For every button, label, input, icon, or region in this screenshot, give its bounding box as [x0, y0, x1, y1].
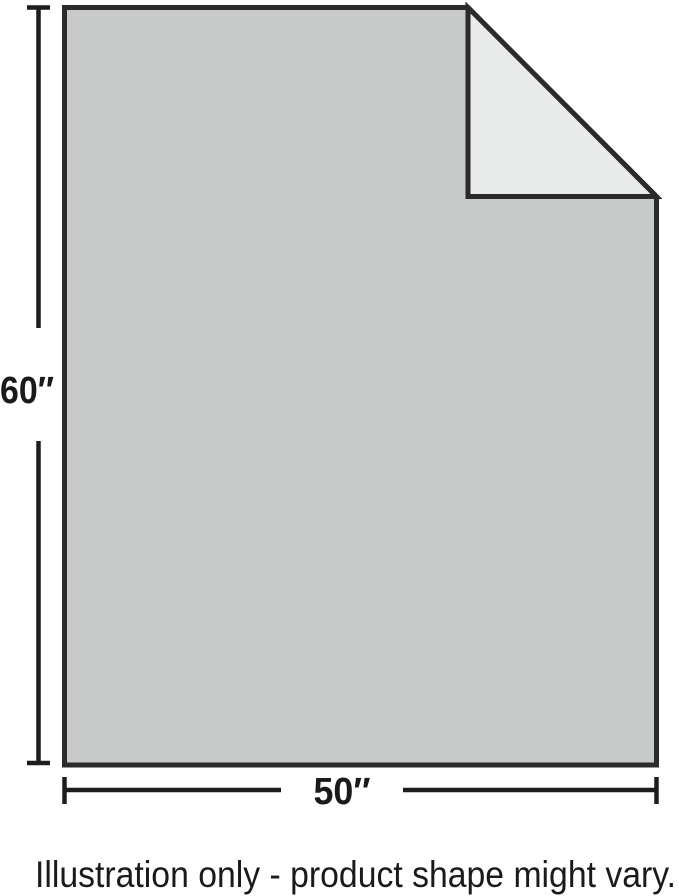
- width-dimension-line: 50″: [65, 771, 657, 813]
- disclaimer-caption: Illustration only - product shape might …: [35, 854, 676, 895]
- height-dimension-label: 60″: [0, 370, 54, 412]
- product-dimension-illustration: 60″ 50″ Illustration only - product shap…: [0, 0, 679, 896]
- width-dimension-label: 50″: [314, 771, 371, 813]
- diagram-canvas: 60″ 50″ Illustration only - product shap…: [0, 0, 679, 896]
- height-dimension-line: 60″: [0, 8, 54, 764]
- folded-corner-flap: [468, 8, 657, 197]
